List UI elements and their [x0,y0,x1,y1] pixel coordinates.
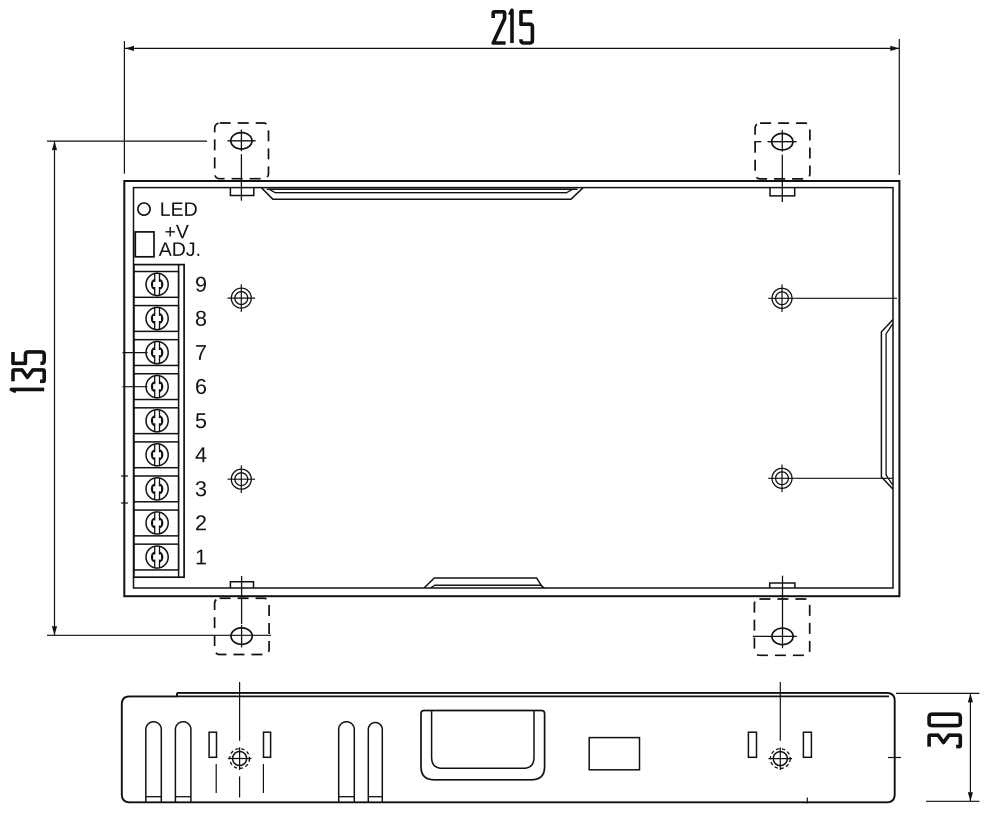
svg-text:9: 9 [195,273,207,297]
svg-text:1: 1 [195,545,207,569]
svg-text:7: 7 [195,341,207,365]
svg-text:4: 4 [195,443,207,467]
svg-text:3: 3 [195,477,207,501]
svg-text:LED: LED [160,199,198,221]
svg-text:6: 6 [195,375,207,399]
svg-text:2: 2 [195,511,207,535]
svg-text:8: 8 [195,307,207,331]
svg-text:5: 5 [195,409,207,433]
svg-text:ADJ.: ADJ. [159,239,201,261]
